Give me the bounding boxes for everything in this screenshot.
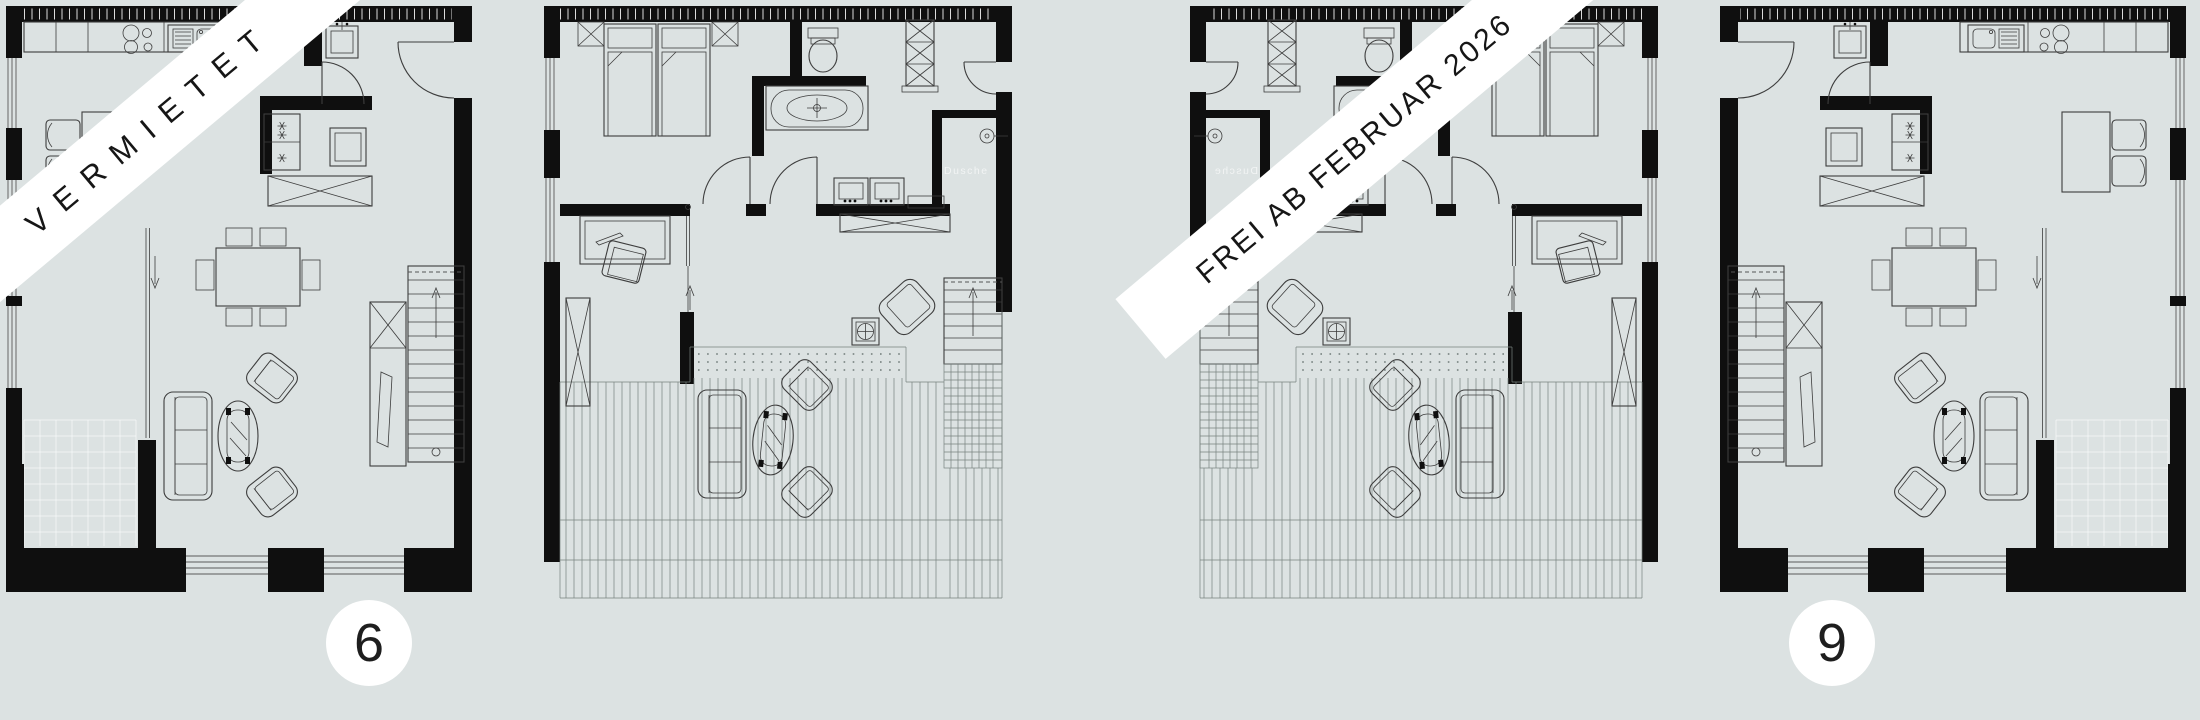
entrance-door	[398, 42, 454, 98]
utility-closet	[264, 114, 372, 206]
dining-table	[196, 228, 320, 326]
lounge-items	[852, 275, 939, 345]
bathroom	[322, 22, 364, 104]
shower-label: Dusche	[944, 165, 989, 177]
patio-paving-grid	[24, 420, 136, 546]
unit-number-badge: 6	[326, 600, 412, 686]
windows	[8, 58, 404, 574]
bedroom	[578, 22, 738, 136]
mirrored-ground-plan	[1720, 6, 2186, 592]
shaft	[902, 20, 938, 92]
roof-terrace	[560, 298, 1002, 598]
floor-plan-ground-unit-9	[1720, 0, 2192, 604]
unit-number: 9	[1817, 612, 1847, 674]
sliding-door	[146, 228, 159, 438]
living-room-furniture	[164, 349, 301, 520]
staircase	[944, 278, 1002, 468]
unit-number: 6	[354, 612, 384, 674]
floor-plan-upper-unit-6: Dusche	[540, 0, 1020, 604]
stair-closet	[370, 302, 406, 466]
unit-number-badge: 9	[1789, 600, 1875, 686]
deck-planks	[560, 378, 1002, 598]
desk-room	[580, 205, 694, 313]
floor-plan-sheet: Dusche	[0, 0, 2200, 720]
